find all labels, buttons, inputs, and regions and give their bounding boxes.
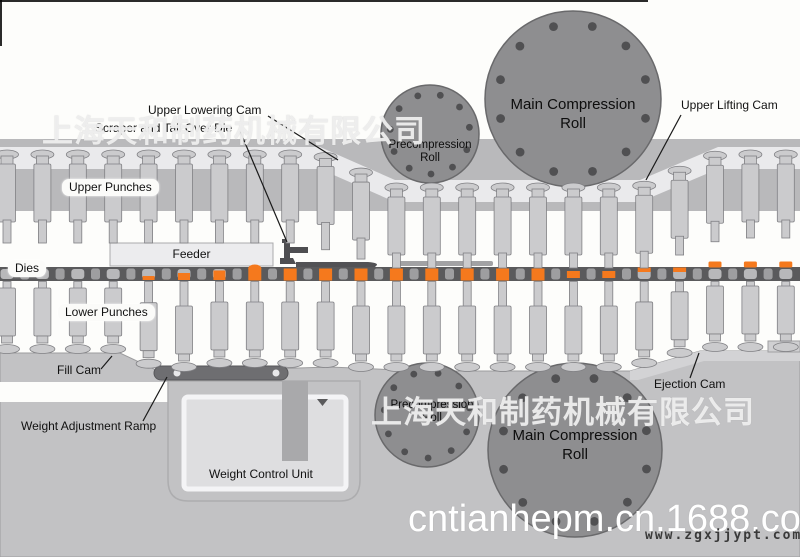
bolt-dot <box>410 371 417 378</box>
upper-punch <box>173 150 196 243</box>
bolt-dot <box>401 448 408 455</box>
diagram-canvas <box>0 0 800 557</box>
base-gap <box>0 382 168 402</box>
label-line: Main Compression <box>503 95 643 114</box>
load-cell-column <box>282 381 308 461</box>
bolt-dot <box>588 22 597 31</box>
watermark-company-top: 上海天和制药机械有限公司 <box>42 106 426 151</box>
bolt-dot <box>466 124 473 131</box>
lower-punch <box>242 282 267 368</box>
label-line: Roll <box>505 445 645 464</box>
lower-punch <box>172 282 197 372</box>
watermark-url-small: www.zgxjjypt.com <box>645 528 800 543</box>
lower-punch <box>526 282 551 372</box>
lower-punch <box>667 282 692 358</box>
bolt-dot <box>428 171 435 178</box>
bolt-dot <box>549 22 558 31</box>
lower-punch <box>738 282 763 352</box>
lower-punch <box>703 282 728 352</box>
lower-punch <box>349 282 374 372</box>
bolt-dot <box>499 465 508 474</box>
label-dies: Dies <box>8 260 46 277</box>
bolt-dot <box>549 167 558 176</box>
label-upper-punches: Upper Punches <box>62 179 159 196</box>
lower-punch <box>207 282 232 368</box>
track-rail <box>398 261 493 266</box>
bolt-dot <box>642 465 651 474</box>
label-lower-punches: Lower Punches <box>58 304 155 321</box>
lower-punch <box>419 282 444 372</box>
lower-punch <box>30 282 55 354</box>
upper-punch <box>137 150 160 243</box>
tablet-press-diagram: Upper Lowering Cam Scraper and Tail Over… <box>0 0 800 557</box>
watermark-company-bottom: 上海天和制药机械有限公司 <box>371 387 755 432</box>
bolt-dot <box>425 455 432 462</box>
scan-artifact-line-left <box>0 0 2 46</box>
upper-punch <box>208 150 231 243</box>
lower-punch <box>490 282 515 372</box>
label-upper-lifting-cam: Upper Lifting Cam <box>681 99 778 112</box>
bolt-dot <box>622 42 631 51</box>
label-main-compression-roll-top: Main Compression Roll <box>503 95 643 133</box>
lower-punch <box>561 282 586 372</box>
lower-punch <box>384 282 409 372</box>
upper-punch <box>102 150 125 243</box>
bolt-dot <box>590 374 599 383</box>
label-line: Roll <box>375 152 485 165</box>
bolt-dot <box>641 75 650 84</box>
label-weight-adjustment-ramp: Weight Adjustment Ramp <box>21 420 156 433</box>
bolt-dot <box>622 148 631 157</box>
lower-punch <box>632 282 657 368</box>
label-fill-cam: Fill Cam <box>57 364 101 377</box>
upper-punch <box>66 150 89 243</box>
upper-punch <box>243 150 266 243</box>
lower-punch <box>136 282 161 369</box>
lower-punch <box>596 282 621 372</box>
bolt-dot <box>551 374 560 383</box>
bolt-dot <box>406 165 413 172</box>
scan-artifact-line-top <box>0 0 648 2</box>
bolt-dot <box>437 92 444 99</box>
label-weight-control-unit: Weight Control Unit <box>209 468 313 481</box>
lower-punch <box>455 282 480 372</box>
label-feeder: Feeder <box>110 248 273 261</box>
die-cell-tablet <box>779 262 792 280</box>
lower-punch <box>313 282 338 368</box>
bolt-dot <box>588 167 597 176</box>
bolt-dot <box>516 148 525 157</box>
upper-punch <box>31 150 54 243</box>
bolt-dot <box>448 447 455 454</box>
bolt-dot <box>456 104 463 111</box>
bolt-dot <box>414 93 421 100</box>
upper-punch <box>314 152 337 249</box>
bolt-dot <box>496 75 505 84</box>
lower-punch <box>278 282 303 368</box>
lower-punch <box>0 282 20 354</box>
label-line: Roll <box>503 114 643 133</box>
bolt-dot <box>516 42 525 51</box>
